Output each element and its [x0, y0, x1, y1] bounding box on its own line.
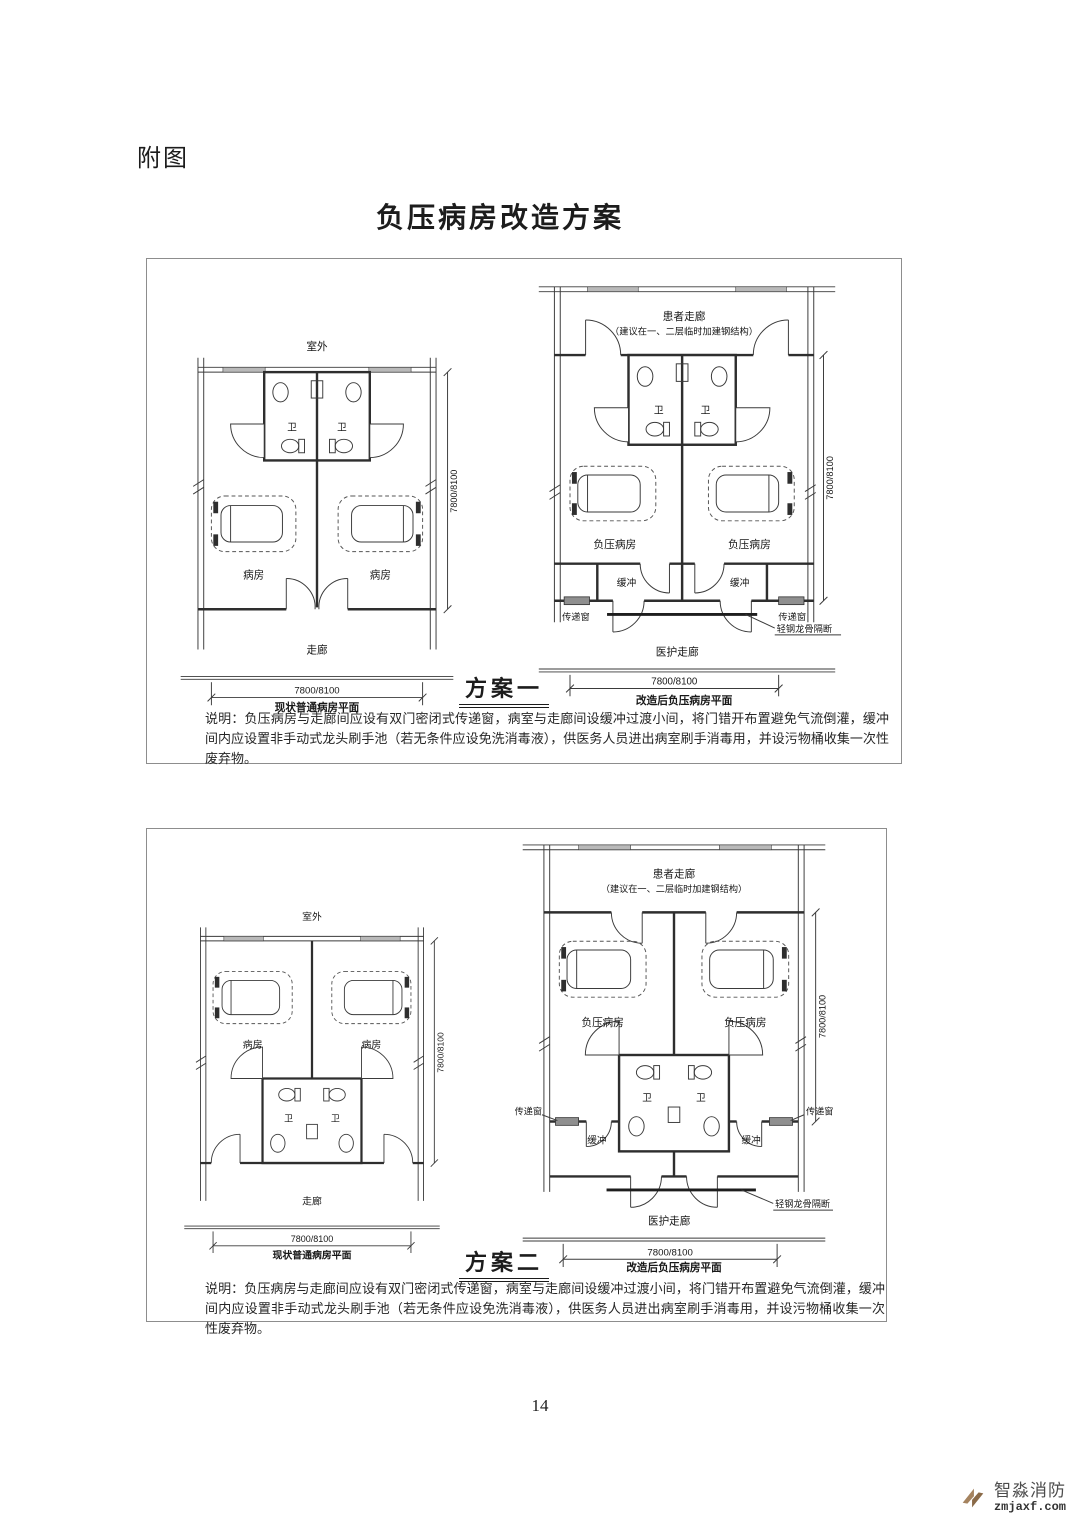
- staff-corridor-label: 医护走廊: [648, 1215, 691, 1228]
- transfer-window-label: 传递窗: [562, 611, 590, 622]
- room-walls: [198, 372, 436, 609]
- plan-caption: 现状普通病房平面: [272, 1248, 351, 1261]
- toilet-label: 卫: [284, 1114, 293, 1124]
- dim-horizontal: 7800/8100: [291, 1234, 333, 1244]
- dim-vertical: 7800/8100: [817, 995, 827, 1038]
- dim-horizontal: 7800/8100: [651, 677, 698, 688]
- buffer-label: 缓冲: [587, 1135, 606, 1147]
- bed-left: [213, 971, 292, 1023]
- window-segments: [588, 287, 787, 292]
- toilet-label: 卫: [642, 1093, 652, 1104]
- room-walls: [200, 941, 423, 1163]
- toilet-label: 卫: [701, 406, 711, 417]
- plan-scheme2-renovated: 患者走廊 （建议在一、二层临时加建钢结构） 负压病房 负压病房 卫 卫 缓冲 缓…: [515, 837, 833, 1273]
- ward-label: 负压病房: [582, 1016, 624, 1029]
- buffer-label: 缓冲: [617, 576, 637, 589]
- ward-label: 病房: [361, 1038, 381, 1051]
- figure-header: 附图: [137, 138, 189, 173]
- plan-caption: 改造后负压病房平面: [636, 694, 733, 707]
- buffer-label: 缓冲: [741, 1135, 760, 1147]
- bed-right: [702, 941, 789, 997]
- page-number: 14: [490, 1396, 590, 1416]
- brand-logo-icon: [958, 1483, 988, 1513]
- scheme-1-label: 方案一: [459, 671, 549, 703]
- staff-corridor-label: 医护走廊: [656, 645, 699, 658]
- room-walls: [544, 912, 804, 1176]
- buffer-label: 缓冲: [730, 576, 750, 589]
- outside-label: 室外: [306, 340, 328, 353]
- partition-label: 轻钢龙骨隔断: [777, 623, 832, 634]
- watermark: 智淼消防 zmjaxf.com: [958, 1482, 1066, 1514]
- window-segments: [579, 845, 772, 850]
- watermark-domain: zmjaxf.com: [994, 1501, 1066, 1514]
- toilet-label: 卫: [331, 1114, 340, 1124]
- transfer-window-label: 传递窗: [806, 1106, 833, 1117]
- scheme-1-note: 说明：负压病房与走廊间应设有双门密闭式传递窗，病室与走廊间设缓冲过渡小间，将门错…: [205, 709, 889, 769]
- plan-scheme2-current: 室外 病房 病房 卫 卫 走廊 7800/8100 现状普通病房平面 7800/…: [177, 895, 447, 1262]
- corridor-doors: [586, 320, 789, 355]
- transfer-window-label: 传递窗: [515, 1106, 542, 1117]
- patient-corridor-label: 患者走廊: [663, 310, 706, 323]
- patient-corridor-label: 患者走廊: [653, 868, 696, 881]
- bed-right: [708, 466, 794, 521]
- corridor-label: 走廊: [302, 1194, 322, 1207]
- dim-vertical: 7800/8100: [449, 470, 459, 513]
- scheme-2-note: 说明：负压病房与走廊间应设有双门密闭式传递窗，病室与走廊间设缓冲过渡小间，将门错…: [205, 1279, 885, 1339]
- dim-vertical: 7800/8100: [435, 1032, 445, 1073]
- room-walls: [554, 355, 813, 601]
- scheme-1-panel: 室外 卫 卫 病房 病房 走廊 7800/8100 现状普通病房平面 7800/…: [146, 258, 902, 764]
- transfer-window-label: 传递窗: [778, 611, 806, 622]
- plan-scheme1-renovated: 患者走廊 （建议在一、二层临时加建钢结构） 卫 卫 负压病房 负压病房 缓冲 缓…: [531, 279, 843, 708]
- dim-horizontal: 7800/8100: [294, 686, 339, 697]
- corridor-label: 走廊: [306, 643, 328, 656]
- dim-vertical: 7800/8100: [825, 456, 835, 500]
- patient-corridor-note: （建议在一、二层临时加建钢结构）: [601, 883, 747, 894]
- ward-label: 病房: [243, 1038, 263, 1051]
- document-page: 附图 负压病房改造方案: [0, 0, 1080, 1526]
- toilet-label: 卫: [654, 406, 664, 417]
- plan-caption: 改造后负压病房平面: [626, 1261, 722, 1273]
- scheme-2-label: 方案二: [459, 1245, 549, 1277]
- bed-left: [559, 941, 646, 997]
- dim-horizontal: 7800/8100: [647, 1247, 693, 1258]
- ward-label: 病房: [243, 569, 264, 582]
- outside-label: 室外: [302, 910, 322, 923]
- bed-right: [338, 496, 422, 552]
- page-title: 负压病房改造方案: [330, 196, 670, 236]
- bed-left: [211, 496, 295, 552]
- bed-right: [332, 971, 411, 1023]
- ward-label: 病房: [370, 569, 391, 582]
- window-segments: [224, 936, 400, 940]
- watermark-text: 智淼消防 zmjaxf.com: [994, 1482, 1066, 1514]
- scheme-2-panel: 室外 病房 病房 卫 卫 走廊 7800/8100 现状普通病房平面 7800/…: [146, 828, 887, 1322]
- toilet-label: 卫: [696, 1093, 706, 1104]
- plan-scheme1-current: 室外 卫 卫 病房 病房 走廊 7800/8100 现状普通病房平面 7800/…: [173, 323, 461, 715]
- toilet-label: 卫: [287, 423, 297, 434]
- ward-label: 负压病房: [724, 1016, 766, 1029]
- patient-corridor-note: （建议在一、二层临时加建钢结构）: [610, 326, 758, 337]
- bed-left: [570, 466, 656, 521]
- toilet-label: 卫: [337, 423, 347, 434]
- ward-label: 负压病房: [728, 538, 771, 551]
- ward-label: 负压病房: [593, 538, 636, 551]
- watermark-brand: 智淼消防: [994, 1482, 1066, 1501]
- partition-label: 轻钢龙骨隔断: [775, 1198, 830, 1209]
